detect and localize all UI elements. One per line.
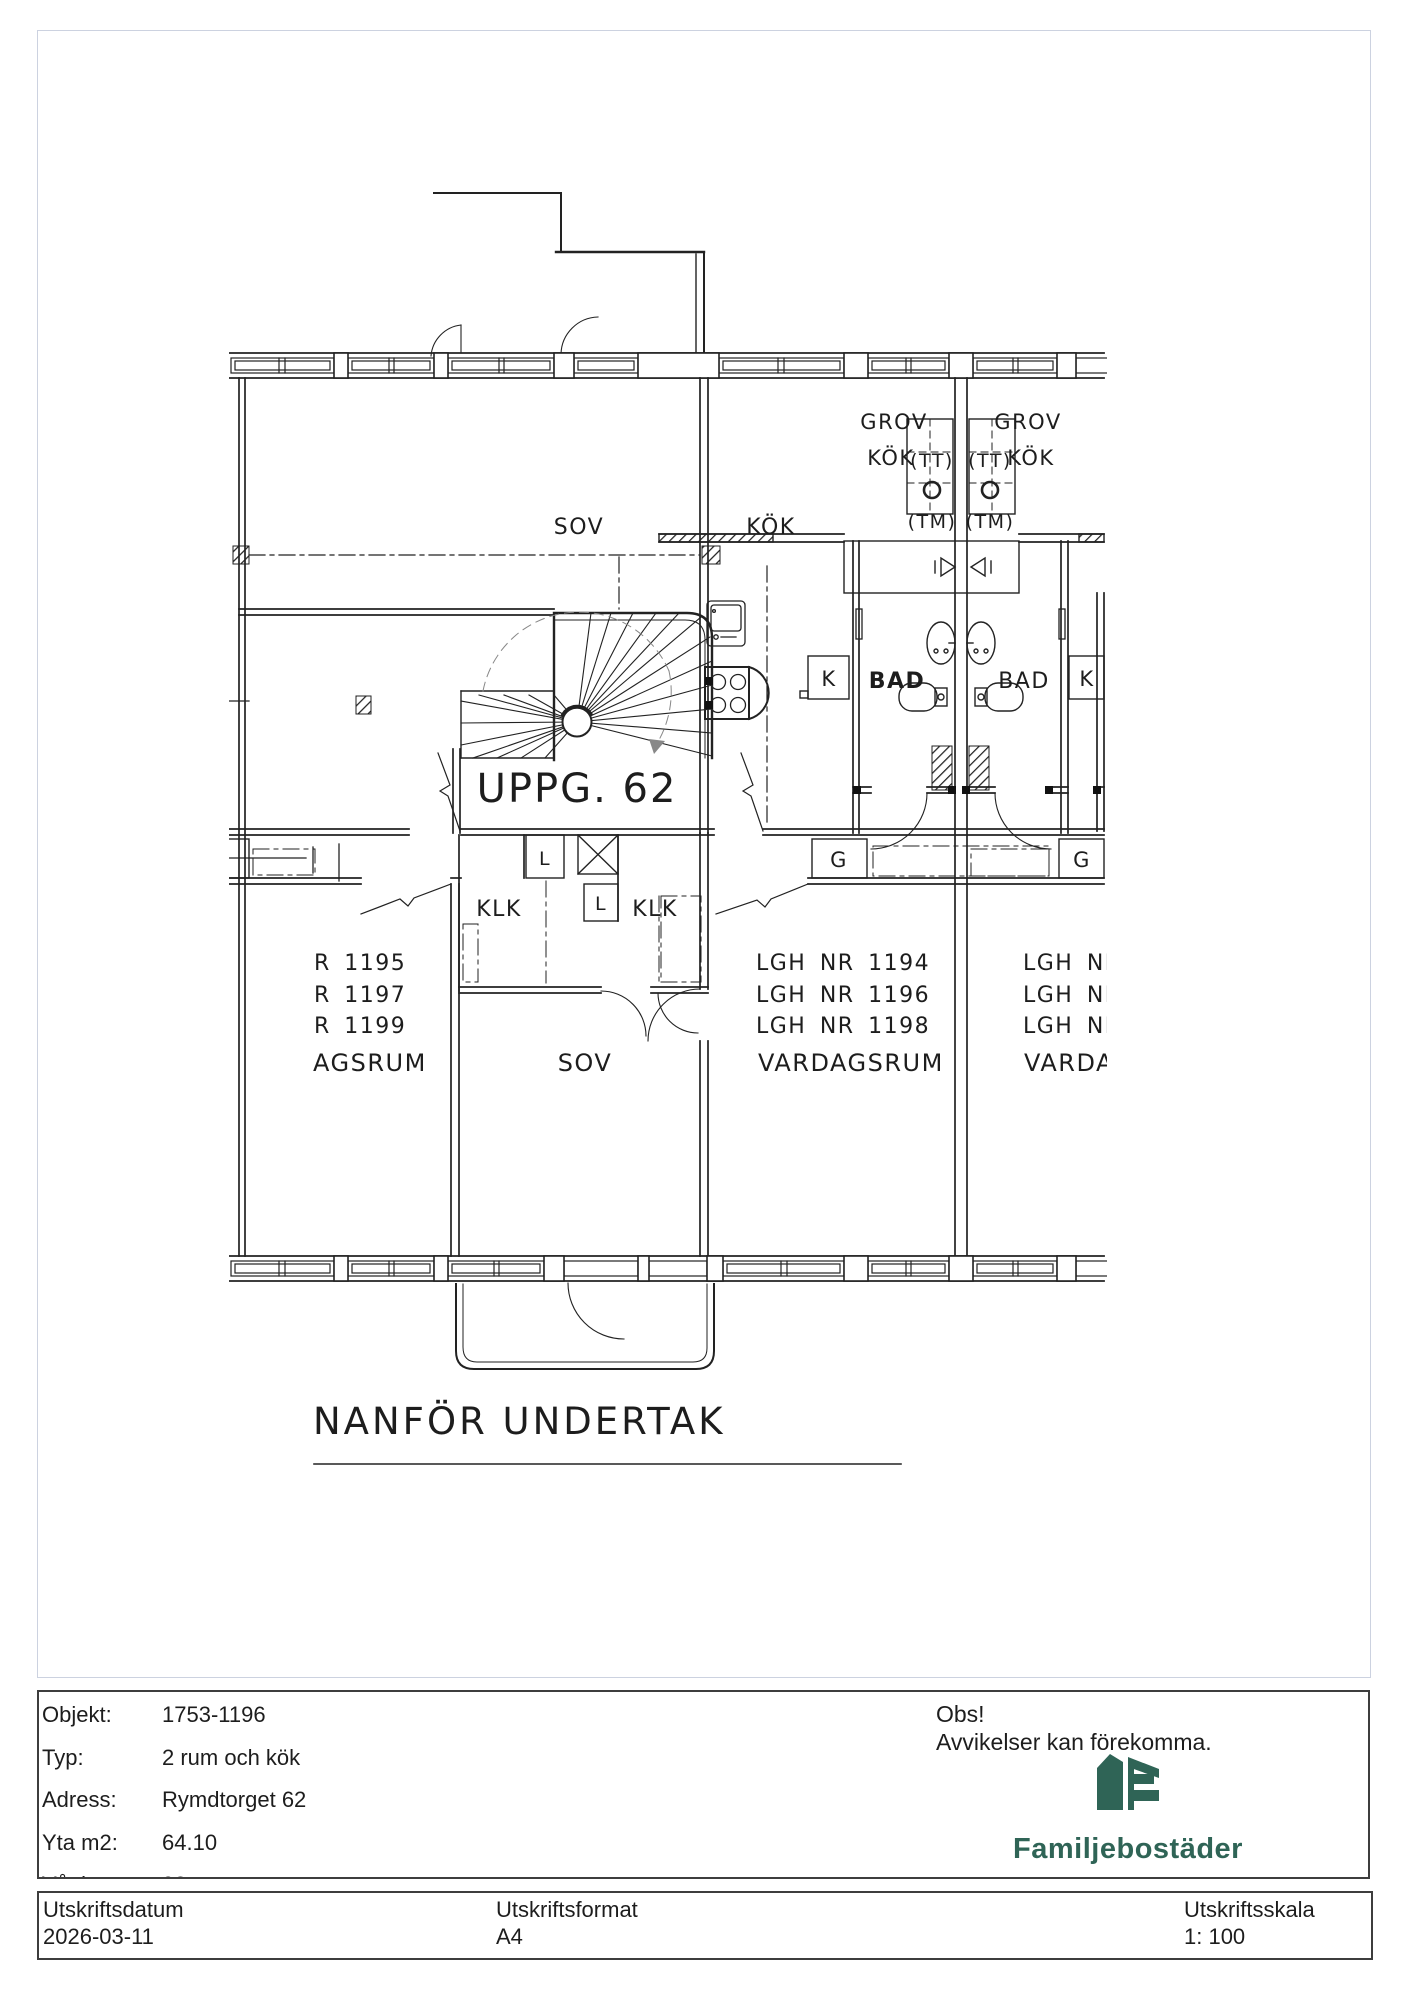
print-scale-col: Utskriftsskala 1: 100 xyxy=(1184,1896,1315,1950)
floor-plan-sheet: GROV KÖK GROV KÖK (TT) (TM) (TT) (TM) SO… xyxy=(37,30,1371,1678)
print-scale-value: 1: 100 xyxy=(1184,1923,1315,1950)
apartment-number: LGH NR 1198 xyxy=(756,1014,930,1039)
top-window-band xyxy=(229,353,1116,378)
room-label-sov-top: SOV xyxy=(554,515,604,540)
notice-text: Avvikelser kan förekomma. xyxy=(936,1728,1212,1756)
wardrobe-label-g-right: G xyxy=(1073,848,1091,872)
room-label-kok-main: KÖK xyxy=(746,514,795,540)
object-info-rows: Objekt: 1753-1196 Typ: 2 rum och kök Adr… xyxy=(42,1694,306,1879)
upper-balcony-walls xyxy=(431,193,704,356)
info-value: 64.10 xyxy=(162,1822,217,1865)
stairwell-label-uppg62: UPPG. 62 xyxy=(477,766,678,812)
fixture-label-k-left: K xyxy=(821,667,836,691)
appliance-label-tt-left: (TT) xyxy=(910,450,954,472)
wardrobe-label-g-left: G xyxy=(830,848,848,872)
bathroom-doors xyxy=(856,609,1065,849)
familjebostader-house-icon xyxy=(1097,1754,1159,1815)
room-label-grov-kok-right2: KÖK xyxy=(1007,445,1054,470)
info-row-yta: Yta m2: 64.10 xyxy=(42,1822,306,1865)
info-value: 2 rum och kök xyxy=(162,1737,300,1780)
apartment-number: R 1195 xyxy=(314,951,406,976)
stove-icon xyxy=(705,667,769,719)
info-row-vaning: Våning: 02 xyxy=(42,1864,306,1879)
floor-plan-drawing: GROV KÖK GROV KÖK (TT) (TM) (TT) (TM) SO… xyxy=(38,31,1372,1679)
print-format-col: Utskriftsformat A4 xyxy=(496,1896,638,1950)
room-label-sov-lower: SOV xyxy=(558,1049,613,1077)
object-info-box: Objekt: 1753-1196 Typ: 2 rum och kök Adr… xyxy=(37,1690,1370,1879)
info-label: Våning: xyxy=(42,1864,162,1879)
print-date-label: Utskriftsdatum xyxy=(43,1896,184,1923)
brand-logo: Familjebostäder xyxy=(963,1754,1293,1866)
print-info-box: Utskriftsdatum 2026-03-11 Utskriftsforma… xyxy=(37,1891,1373,1960)
room-label-bad-left: BAD xyxy=(869,669,926,694)
print-scale-label: Utskriftsskala xyxy=(1184,1896,1315,1923)
disclaimer-notice: Obs! Avvikelser kan förekomma. xyxy=(936,1700,1212,1756)
room-label-grov-kok-right: GROV xyxy=(994,410,1061,434)
info-row-objekt: Objekt: 1753-1196 xyxy=(42,1694,306,1737)
appliance-label-tm-left: (TM) xyxy=(908,511,957,533)
appliance-label-tt-right: (TT) xyxy=(968,450,1012,472)
room-label-bad-right: BAD xyxy=(998,669,1050,694)
print-format-label: Utskriftsformat xyxy=(496,1896,638,1923)
interior-walls xyxy=(229,378,1104,1256)
washbasin-icon-left xyxy=(927,622,955,664)
info-value: 02 xyxy=(162,1864,186,1879)
hatched-walls xyxy=(233,534,1104,790)
note-undertak: NANFÖR UNDERTAK xyxy=(313,1400,726,1443)
print-date-value: 2026-03-11 xyxy=(43,1923,184,1950)
apartment-number: LGH NR 1194 xyxy=(756,951,930,976)
lower-balcony xyxy=(456,1284,714,1369)
apartment-number: LGH NR 1196 xyxy=(756,983,930,1008)
washbasin-icon-right xyxy=(967,622,995,664)
apartment-number: R 1199 xyxy=(314,1014,406,1039)
apartment-number: LGH NR xyxy=(1023,1014,1122,1039)
room-label-vardagsrum-left: AGSRUM xyxy=(313,1049,427,1077)
room-label-grov-kok-left: GROV xyxy=(860,410,927,434)
appliance-label-tm-right: (TM) xyxy=(966,511,1015,533)
notice-title: Obs! xyxy=(936,1700,1212,1728)
info-row-typ: Typ: 2 rum och kök xyxy=(42,1737,306,1780)
info-label: Objekt: xyxy=(42,1694,162,1737)
spiral-staircase xyxy=(461,612,712,760)
closet-label-l-lower: L xyxy=(595,893,607,915)
info-label: Adress: xyxy=(42,1779,162,1822)
room-label-vardagsrum-mid: VARDAGSRUM xyxy=(758,1049,944,1077)
info-label: Yta m2: xyxy=(42,1822,162,1865)
room-label-klk-right: KLK xyxy=(632,897,678,922)
print-format-value: A4 xyxy=(496,1923,638,1950)
info-row-adress: Adress: Rymdtorget 62 xyxy=(42,1779,306,1822)
room-label-grov-kok-left2: KÖK xyxy=(867,445,914,470)
room-label-klk-left: KLK xyxy=(476,897,522,922)
apartment-number: R 1197 xyxy=(314,983,406,1008)
info-value: Rymdtorget 62 xyxy=(162,1779,306,1822)
brand-name: Familjebostäder xyxy=(963,1833,1293,1866)
room-label-vardagsrum-right: VARDAG xyxy=(1024,1049,1134,1077)
laundry-hatch-door xyxy=(844,541,1019,593)
apartment-number: LGH NR xyxy=(1023,983,1122,1008)
closet-label-l-upper: L xyxy=(539,848,551,870)
info-value: 1753-1196 xyxy=(162,1694,266,1737)
print-date-col: Utskriftsdatum 2026-03-11 xyxy=(43,1896,184,1950)
fixture-label-k-right: K xyxy=(1079,667,1094,691)
apartment-number: LGH NR xyxy=(1023,951,1122,976)
bottom-window-band xyxy=(229,1256,1116,1339)
info-label: Typ: xyxy=(42,1737,162,1780)
